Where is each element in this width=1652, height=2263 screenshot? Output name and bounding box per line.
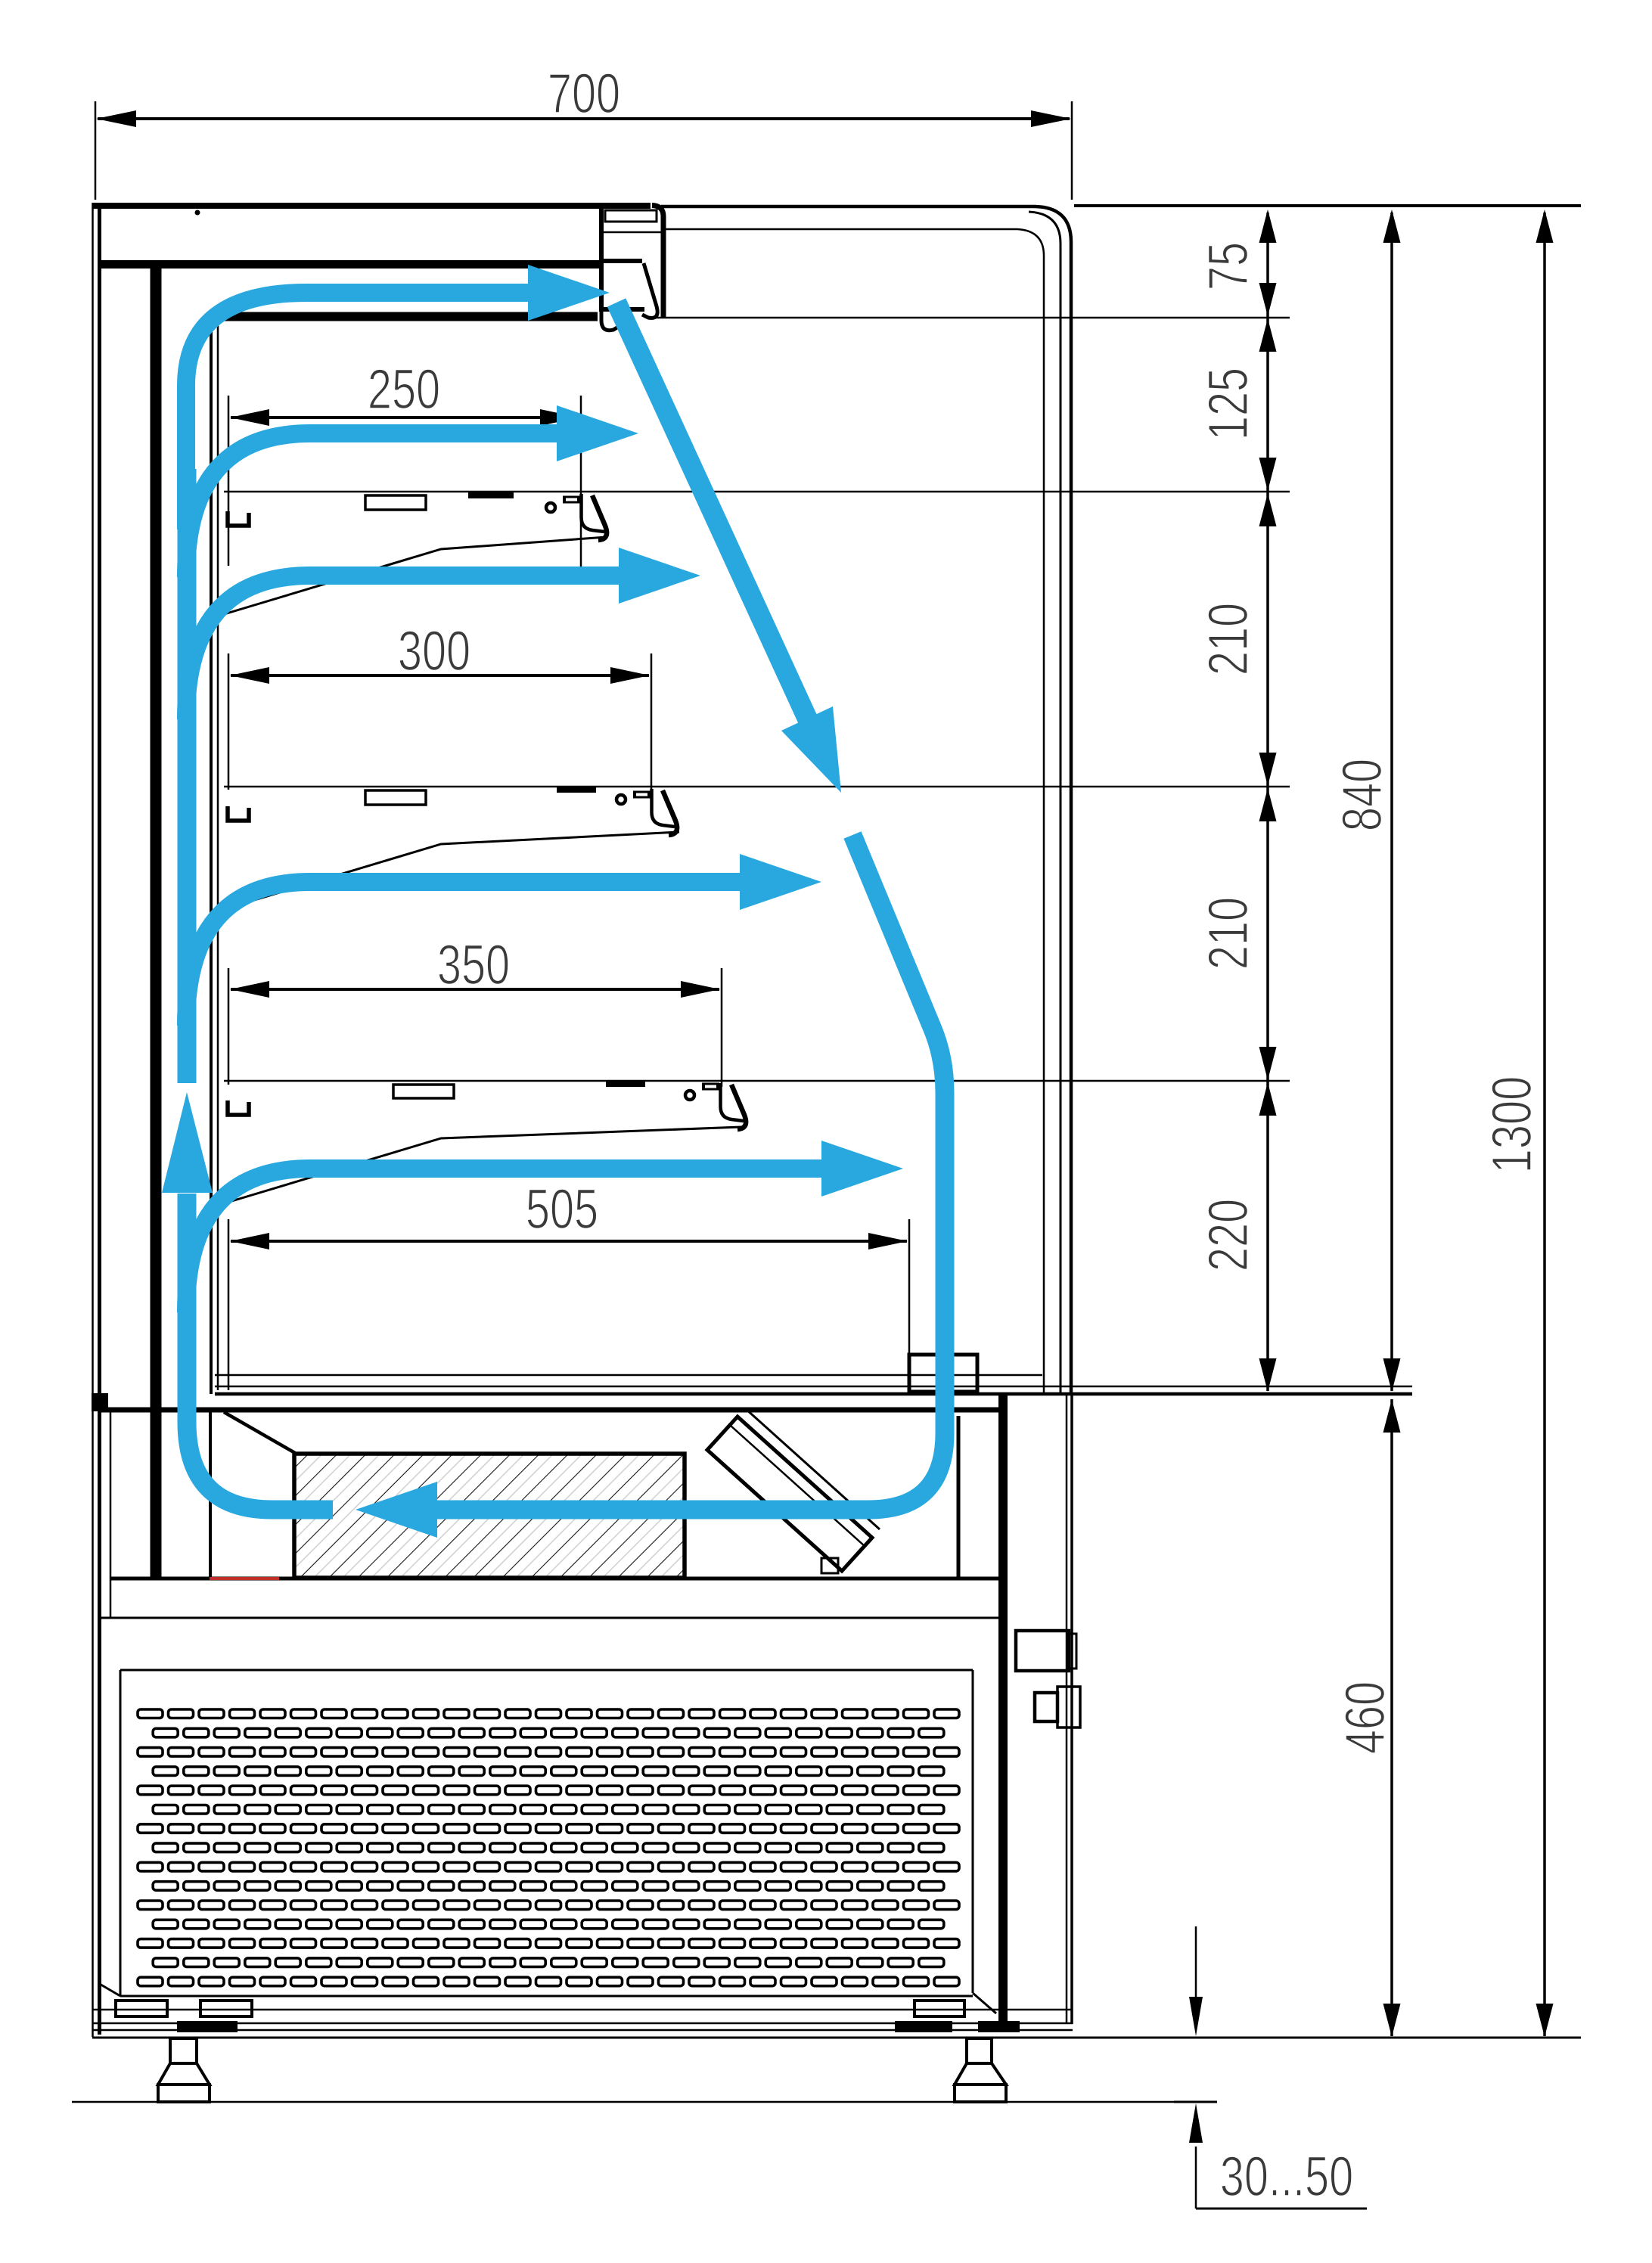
svg-text:75: 75 <box>1197 242 1260 290</box>
svg-text:210: 210 <box>1197 897 1260 970</box>
svg-text:220: 220 <box>1197 1199 1260 1271</box>
svg-text:460: 460 <box>1334 1681 1397 1754</box>
svg-text:300: 300 <box>398 620 470 683</box>
svg-text:1300: 1300 <box>1481 1076 1544 1173</box>
svg-text:840: 840 <box>1331 759 1394 831</box>
svg-text:505: 505 <box>526 1178 598 1241</box>
svg-text:700: 700 <box>548 63 620 126</box>
svg-text:250: 250 <box>368 359 440 421</box>
svg-text:210: 210 <box>1197 603 1260 675</box>
svg-text:30...50: 30...50 <box>1220 2146 1354 2209</box>
svg-text:125: 125 <box>1197 368 1260 440</box>
svg-text:350: 350 <box>437 934 510 997</box>
